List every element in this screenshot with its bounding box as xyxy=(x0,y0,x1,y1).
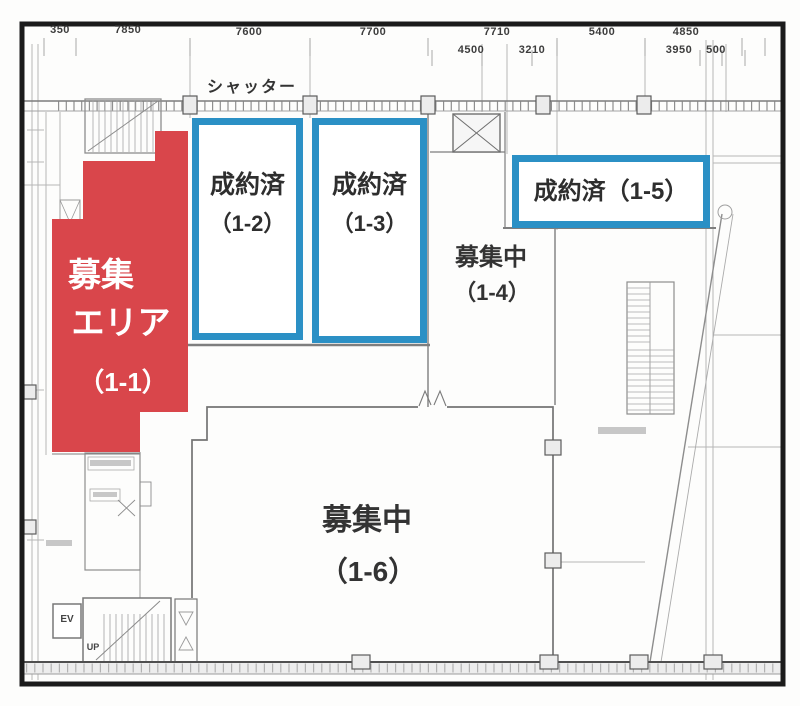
machine-room xyxy=(85,453,151,570)
dimension-3210: 3210 xyxy=(519,45,545,56)
dimension-4500: 4500 xyxy=(458,45,484,56)
stairs-up-label: UP xyxy=(87,643,100,652)
stairs-top-left xyxy=(85,99,161,153)
area-1-1-label-line1: 募集 xyxy=(68,258,134,291)
unit-1-3-status: 成約済 xyxy=(332,173,407,198)
unit-1-4-status: 募集中 xyxy=(455,246,527,270)
dimension-350: 350 xyxy=(50,25,70,36)
dimension-7600: 7600 xyxy=(236,27,262,38)
dimension-500: 500 xyxy=(706,45,726,56)
unit-1-6-number: （1-6） xyxy=(320,558,416,586)
dimension-3950: 3950 xyxy=(666,45,692,56)
dimension-7710: 7710 xyxy=(484,27,510,38)
unit-1-2-status: 成約済 xyxy=(210,173,285,198)
unit-1-2-number: （1-2） xyxy=(210,213,286,235)
unit-1-5-box: 成約済（1-5） xyxy=(512,155,710,228)
unit-1-2-box: 成約済 （1-2） xyxy=(192,118,303,340)
escalator-diagonal xyxy=(650,205,733,662)
dimension-7700: 7700 xyxy=(360,27,386,38)
unit-1-3-box: 成約済 （1-3） xyxy=(312,118,427,343)
dimension-5400: 5400 xyxy=(589,27,615,38)
unit-1-3-number: （1-3） xyxy=(332,213,408,235)
dimension-4850: 4850 xyxy=(673,27,699,38)
stairs-right xyxy=(627,282,674,414)
elevator-shaft xyxy=(453,114,500,152)
unit-1-5-status: 成約済（1-5） xyxy=(534,180,689,204)
unit-1-4-number: （1-4） xyxy=(454,282,530,304)
area-1-1-unit: （1-1） xyxy=(78,369,168,395)
elevator-label: EV xyxy=(60,615,73,625)
door-swing-icon xyxy=(419,391,446,406)
floor-plan: 350 7850 7600 7700 7710 5400 4850 4500 3… xyxy=(0,0,800,706)
dimension-ticks xyxy=(44,38,765,66)
unit-1-6-status: 募集中 xyxy=(322,506,412,536)
dimension-7850: 7850 xyxy=(115,25,141,36)
floorplan-linework xyxy=(0,0,800,706)
duct-shaft xyxy=(175,599,197,663)
bottom-wall xyxy=(24,662,782,674)
shutter-label: シャッター xyxy=(207,80,297,96)
stairs-bottom-left xyxy=(83,598,171,664)
area-1-1-label-line2: エリア xyxy=(72,306,171,339)
shutter-wall xyxy=(24,101,782,111)
